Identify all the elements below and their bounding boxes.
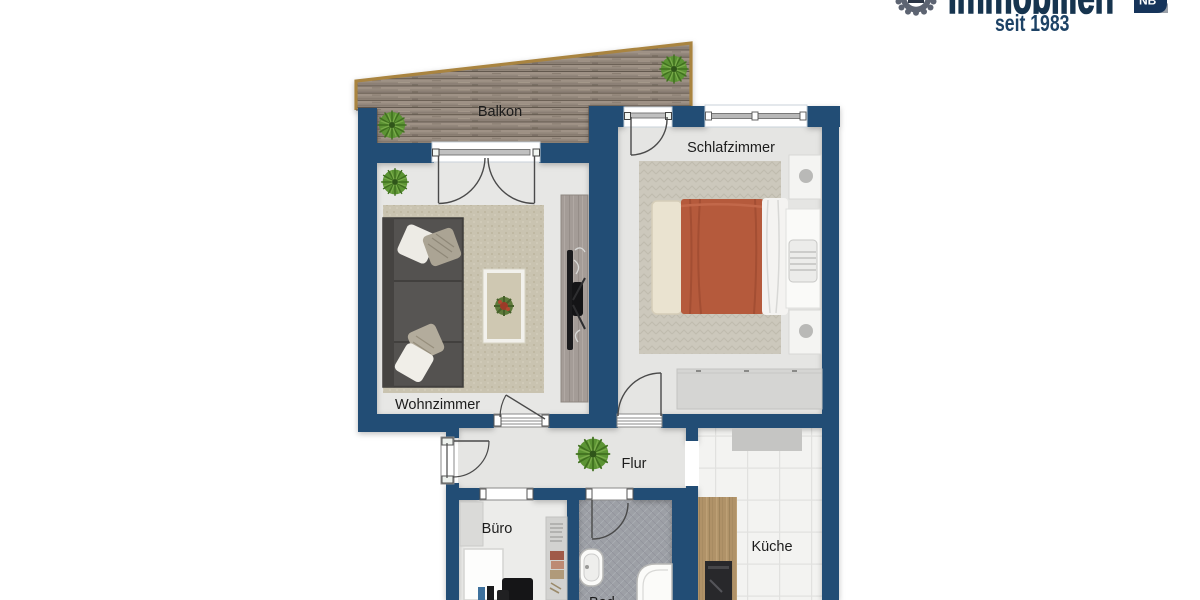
svg-text:Bad: Bad [589,595,615,600]
svg-text:Küche: Küche [751,539,792,555]
svg-text:Balkon: Balkon [478,104,522,120]
svg-text:NB: NB [1139,0,1157,8]
svg-text:Flur: Flur [622,456,647,472]
svg-text:seit 1983: seit 1983 [995,11,1069,37]
svg-text:Büro: Büro [482,521,513,537]
svg-text:Schlafzimmer: Schlafzimmer [687,140,775,156]
svg-text:Wohnzimmer: Wohnzimmer [395,397,480,413]
